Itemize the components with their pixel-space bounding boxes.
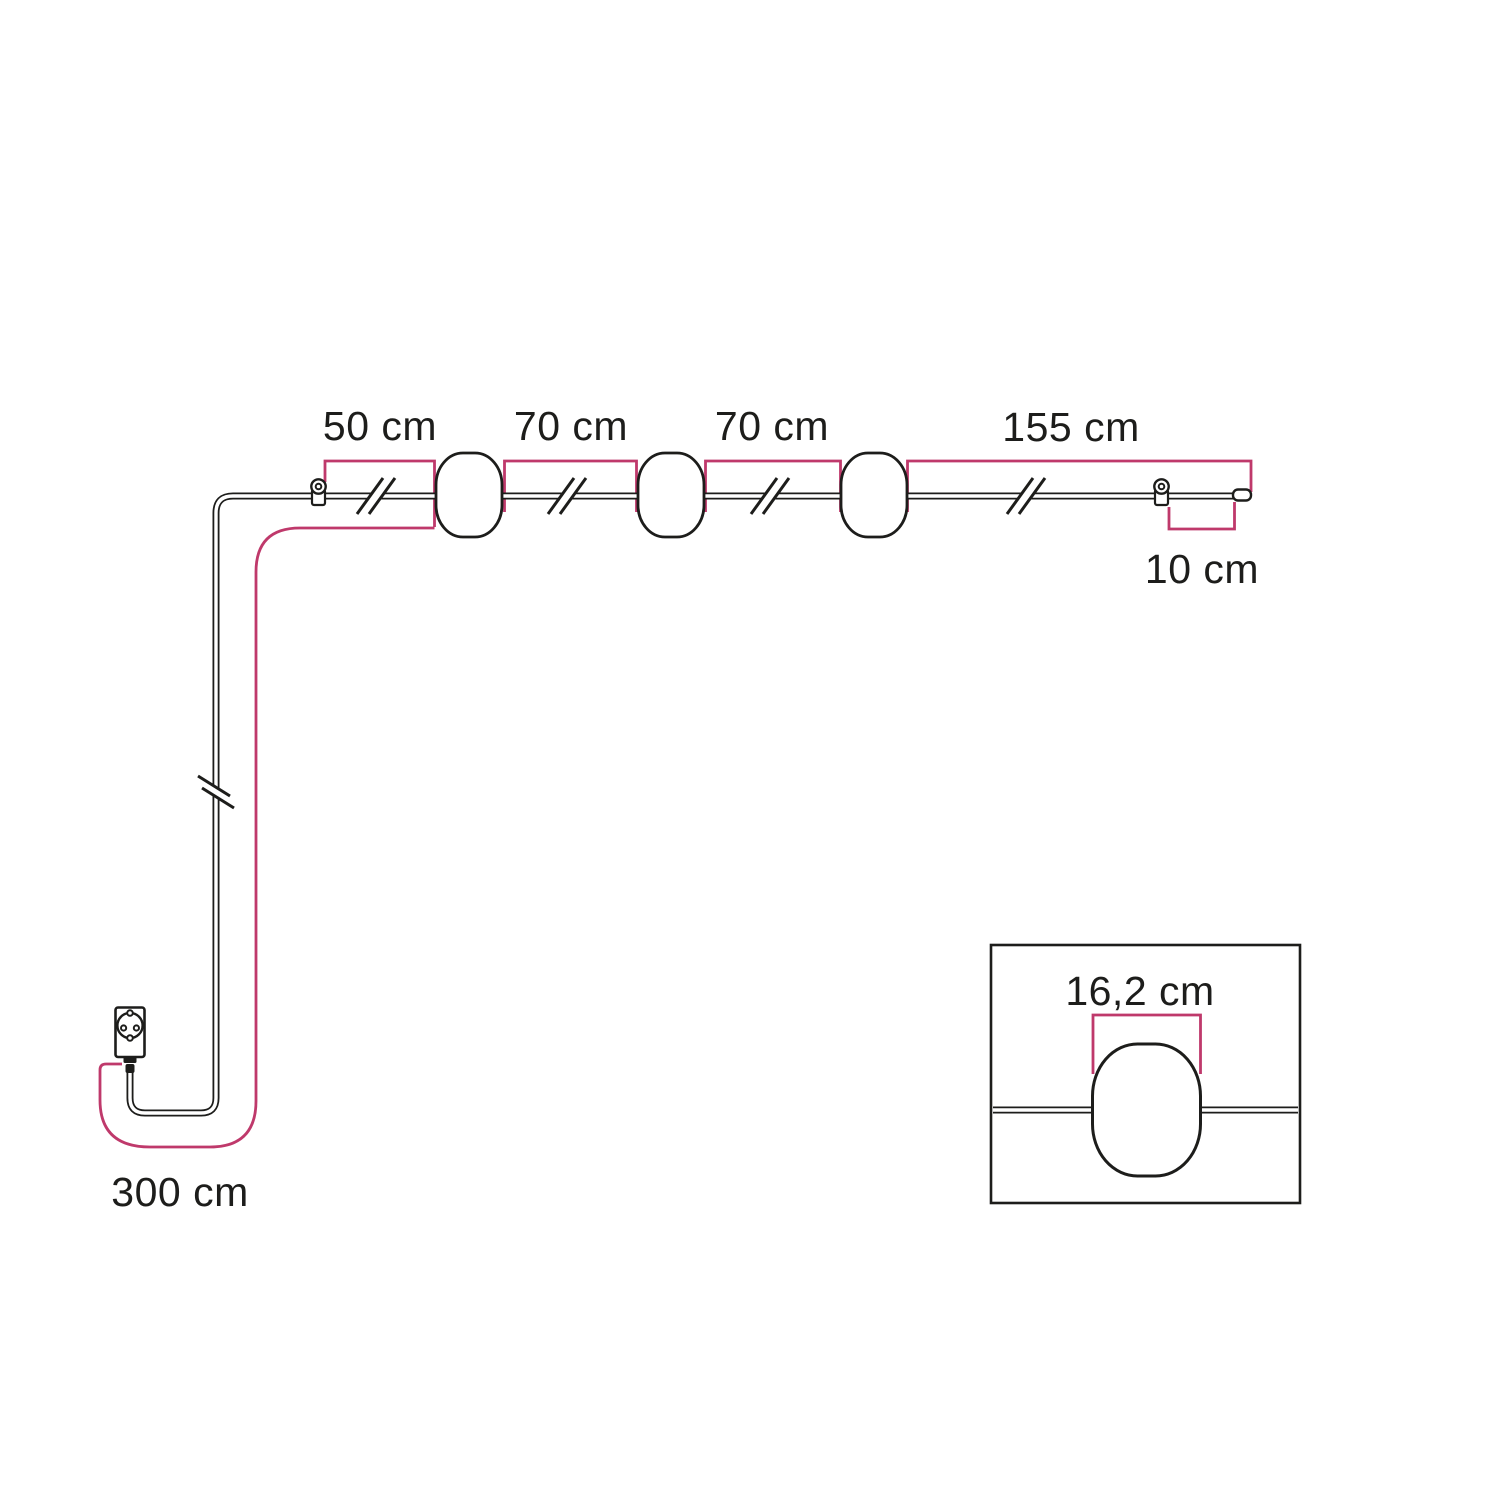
diagram-page: 50 cm 70 cm 70 cm 155 cm 10 cm 300 cm 16…	[0, 0, 1500, 1500]
label-segment-70cm-a: 70 cm	[514, 403, 628, 449]
dimension-line-300cm	[100, 528, 435, 1147]
lampshade-icon	[1093, 1044, 1201, 1176]
hook-eyelet-icon	[1154, 479, 1168, 505]
label-shade-width: 16,2 cm	[1065, 968, 1214, 1014]
lampshade-icon	[436, 453, 502, 537]
cable-dimension-diagram: 50 cm 70 cm 70 cm 155 cm 10 cm 300 cm 16…	[0, 0, 1500, 1500]
dimension-bracket-10cm	[1169, 502, 1235, 529]
label-lead-300cm: 300 cm	[111, 1169, 248, 1215]
cable-end-cap-icon	[1233, 490, 1251, 501]
label-segment-50cm: 50 cm	[323, 403, 437, 449]
label-segment-155cm: 155 cm	[1002, 404, 1139, 450]
lampshade-icon	[841, 453, 907, 537]
hook-eyelet-icon	[311, 479, 325, 505]
label-end-10cm: 10 cm	[1145, 546, 1259, 592]
dimension-bracket-155cm	[908, 461, 1252, 512]
lampshade-icon	[638, 453, 704, 537]
label-segment-70cm-b: 70 cm	[715, 403, 829, 449]
